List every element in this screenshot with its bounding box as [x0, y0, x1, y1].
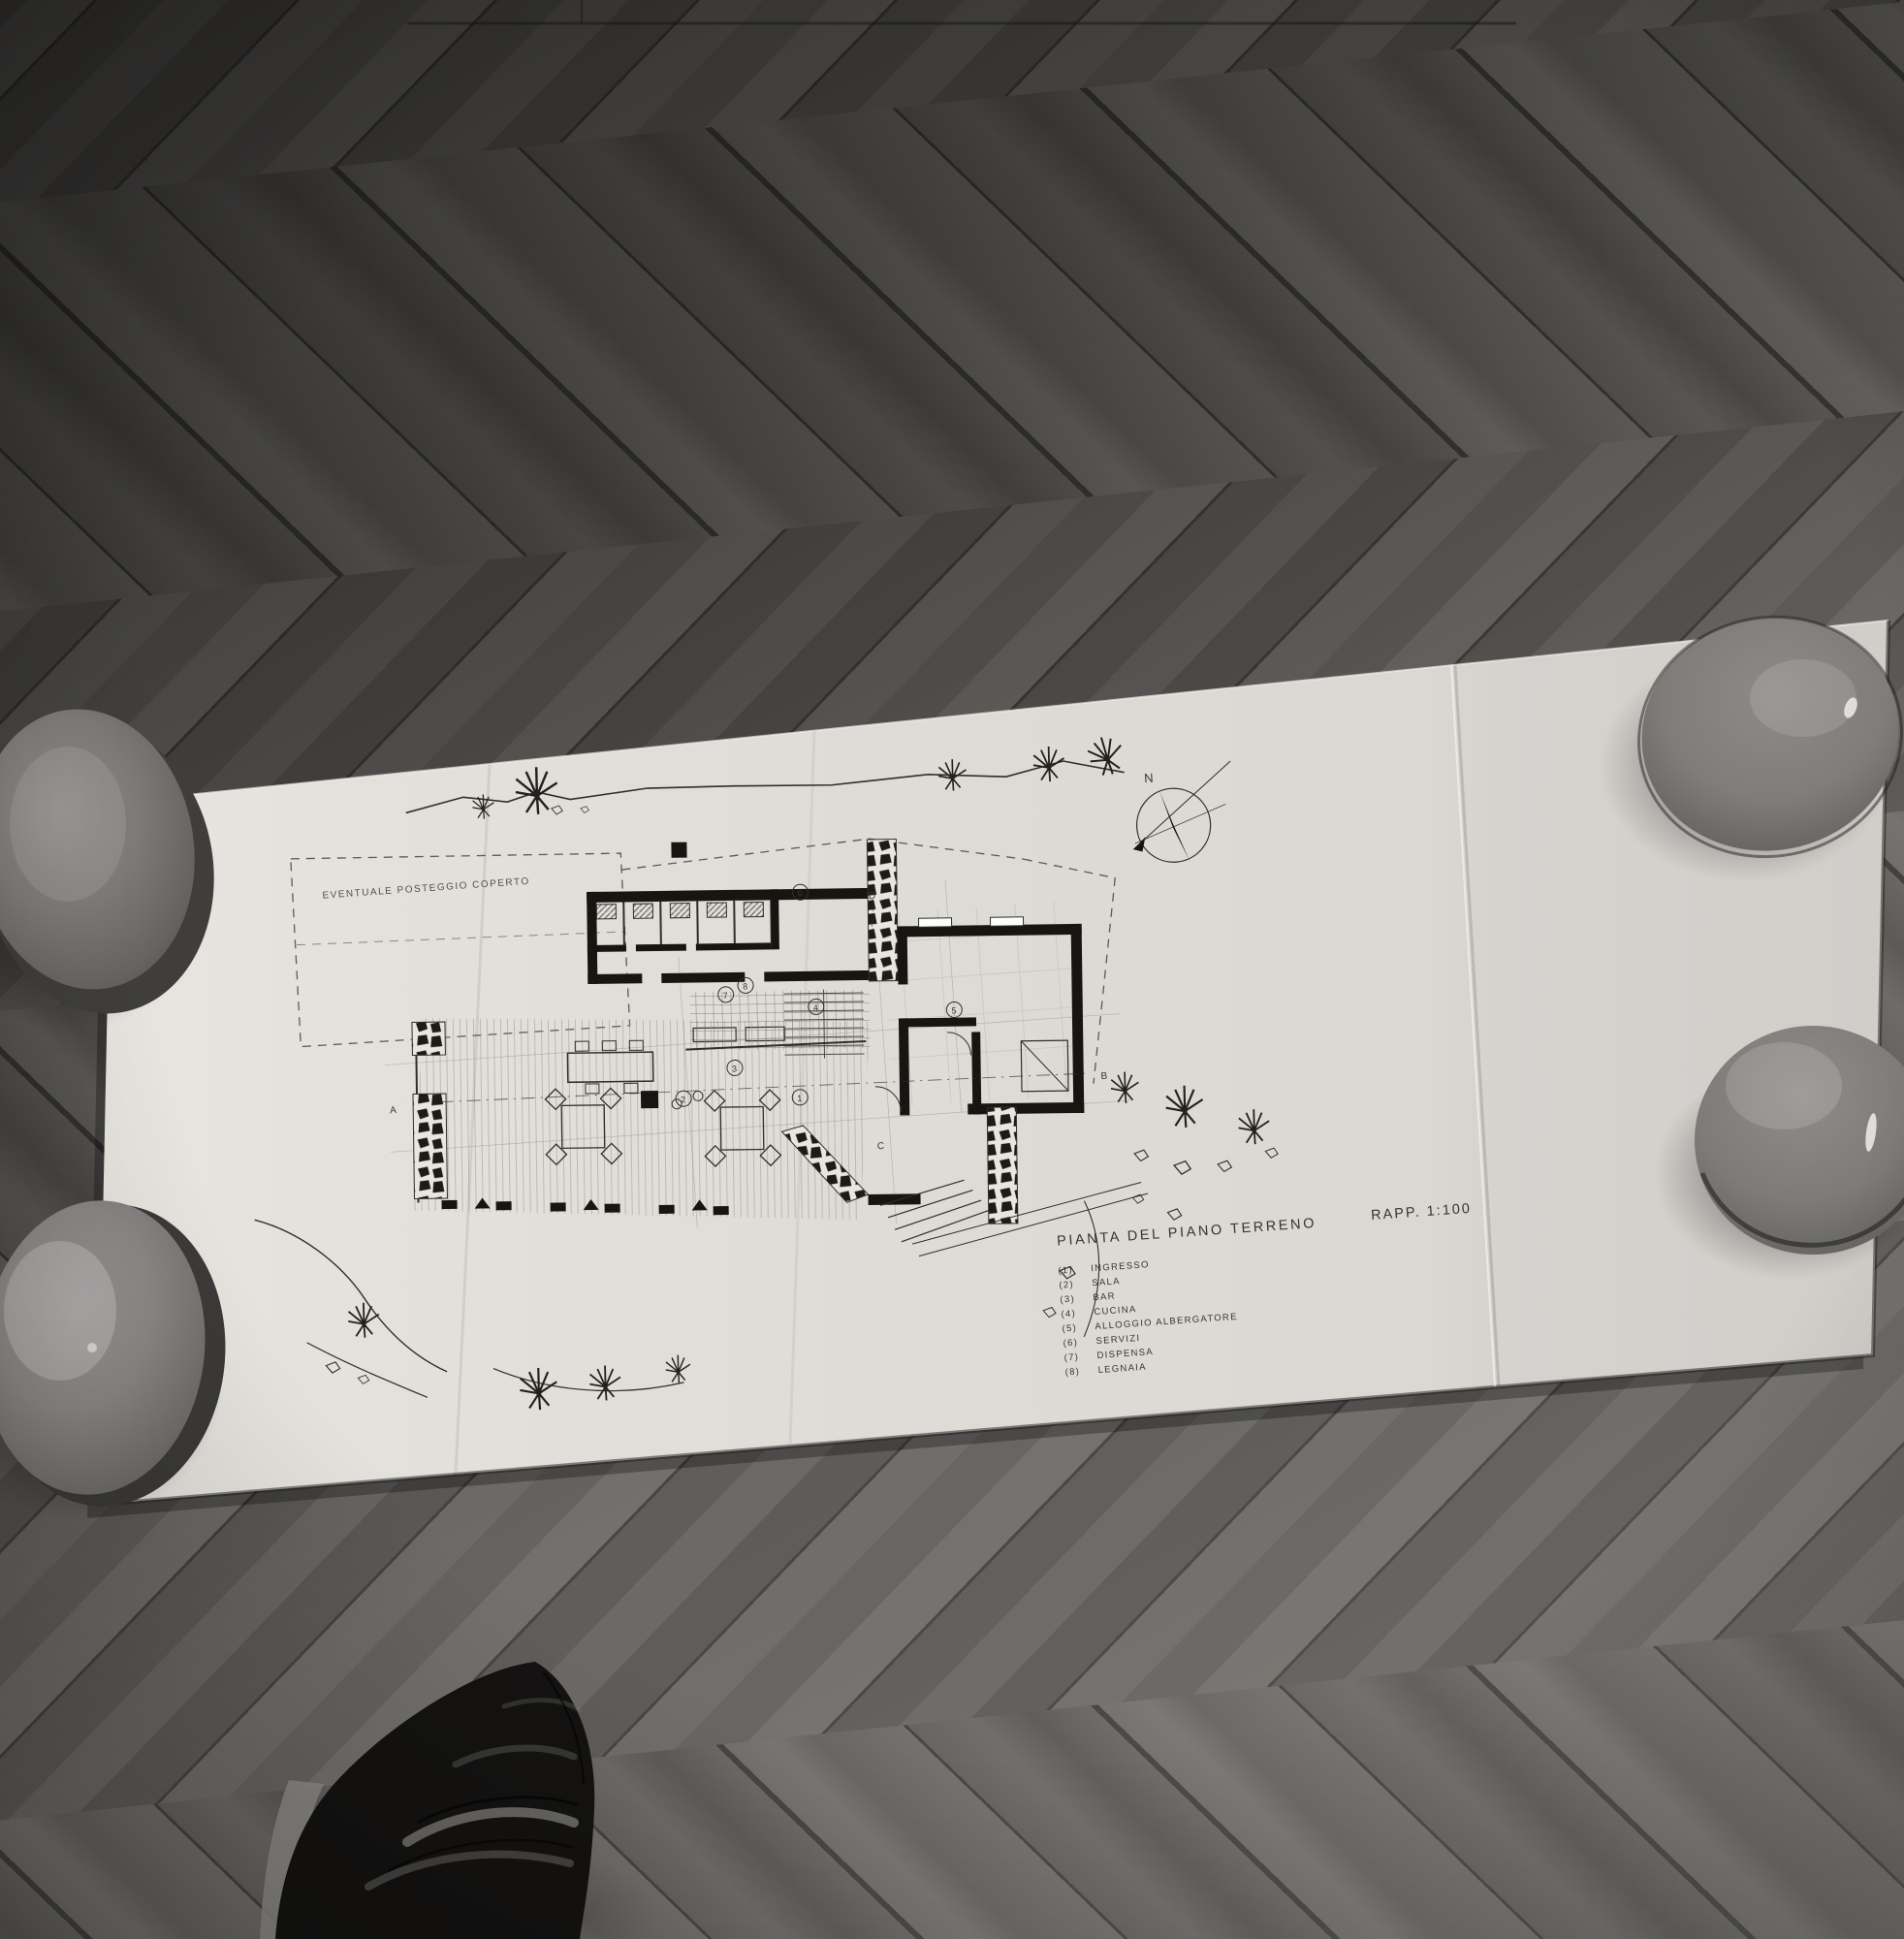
- photo-vignette: [0, 0, 1904, 1939]
- photo-floorplan-on-parquet: N EVENTUALE POSTEGGIO COPERTO: [0, 0, 1904, 1939]
- scene: N EVENTUALE POSTEGGIO COPERTO: [0, 0, 1904, 1939]
